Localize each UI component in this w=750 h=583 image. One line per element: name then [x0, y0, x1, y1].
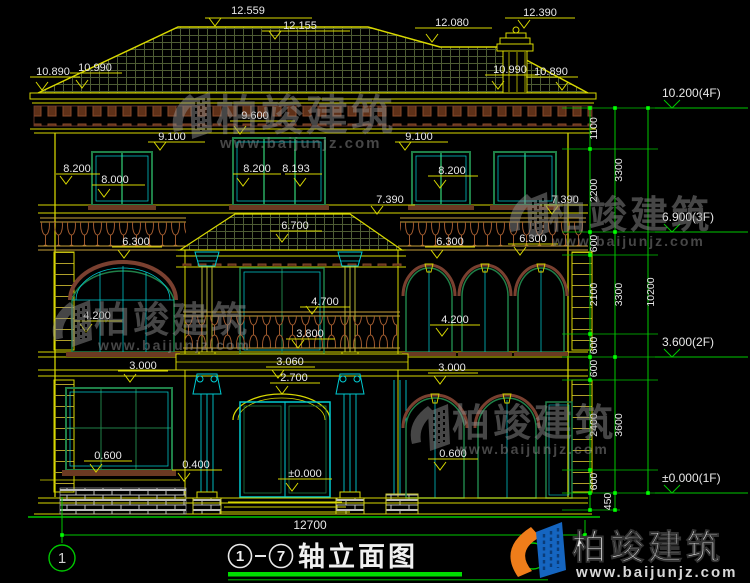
- leader-arrow: [124, 374, 136, 382]
- leader-arrow: [399, 142, 411, 150]
- leader-arrow: [286, 483, 298, 491]
- watermark-top: 柏竣建筑 www.baijunjz.com: [173, 92, 396, 152]
- brand-logo-url: www.baijunjz.com: [575, 564, 737, 581]
- leader-arrow: [431, 250, 443, 258]
- leader-arrow: [276, 386, 288, 394]
- dim-label: 9.100: [158, 131, 186, 143]
- leader-arrow: [237, 178, 249, 186]
- dim-label: 4.200: [441, 314, 469, 326]
- watermark-logo-icon: [411, 404, 450, 451]
- dim-label: 0.600: [94, 450, 122, 462]
- dim-label: 8.000: [101, 174, 129, 186]
- watermark-brand: 柏竣建筑: [452, 403, 616, 445]
- dim-label: 8.200: [63, 163, 91, 175]
- dim-label: 4.700: [311, 296, 339, 308]
- title-underline: [228, 572, 462, 577]
- leader-arrow: [118, 250, 130, 258]
- leader-arrow: [514, 247, 526, 255]
- dim-label: 2.700: [280, 372, 308, 384]
- drawing-title: 1 7 轴立面图: [228, 541, 548, 581]
- dim-label: 8.193: [282, 163, 310, 175]
- dim-label: 8.200: [243, 163, 271, 175]
- cad-canvas: 1100 2200 600 2100 600 600 2400 600 450 …: [0, 0, 750, 583]
- dim-label: 6.300: [436, 236, 464, 248]
- dim-label: 3.000: [438, 362, 466, 374]
- dim-text: 450: [602, 493, 614, 511]
- dim-label: 10.990: [78, 62, 112, 74]
- dim-label: 3.000: [129, 360, 157, 372]
- windows-2f-arched-right: [402, 264, 568, 356]
- brand-logo-building: [536, 522, 566, 578]
- dim-label: 3.060: [276, 356, 304, 368]
- level-label: 3.600(2F): [662, 335, 714, 349]
- dim-label: 6.700: [281, 220, 309, 232]
- leader-arrow: [60, 176, 72, 184]
- title-text: 轴立面图: [298, 541, 418, 572]
- entry-door: [233, 394, 330, 497]
- leader-arrow: [436, 328, 448, 336]
- dim-text: 2100: [588, 283, 600, 307]
- brand-logo-name: 柏竣建筑: [572, 528, 724, 567]
- level-label: 10.200(4F): [662, 86, 721, 100]
- title-underline-thin: [228, 579, 548, 581]
- total-width-label: 12700: [293, 518, 327, 532]
- porch-column-1f-left: [193, 374, 221, 514]
- dim-label: 0.400: [182, 459, 210, 471]
- dim-text: 3300: [613, 158, 625, 182]
- dim-label: 10.990: [493, 64, 527, 76]
- leader-arrow: [426, 34, 438, 42]
- dim-label: 12.390: [523, 7, 557, 19]
- dim-label: 9.100: [405, 131, 433, 143]
- leader-arrow: [154, 142, 166, 150]
- watermark-left: 柏竣建筑 www.baijunjz.com: [53, 299, 251, 353]
- dim-text: 3300: [613, 283, 625, 307]
- dim-label: 12.155: [283, 20, 317, 32]
- dim-label: 10.890: [534, 66, 568, 78]
- dim-label: 8.200: [438, 165, 466, 177]
- watermark-brand: 柏竣建筑: [216, 92, 396, 139]
- watermark-url: www.baijunjz.com: [97, 337, 251, 353]
- level-label: ±0.000(1F): [662, 471, 721, 485]
- dim-text: 1100: [588, 117, 600, 140]
- main-roof: [38, 27, 588, 93]
- dim-text: 600: [588, 473, 600, 491]
- watermark-brand: 柏竣建筑: [94, 299, 250, 340]
- leader-arrow: [518, 20, 530, 28]
- dim-text: 600: [588, 337, 600, 355]
- dim-label: ±0.000: [288, 468, 322, 480]
- watermark-brand: 柏竣建筑: [548, 195, 712, 237]
- bay-pilaster-1f: [386, 380, 418, 514]
- dim-label: 6.300: [122, 236, 150, 248]
- watermark-url: www.baijunjz.com: [551, 233, 705, 249]
- leader-arrow: [434, 462, 446, 470]
- watermark-url: www.baijunjz.com: [455, 441, 609, 457]
- dim-label: 12.080: [435, 17, 469, 29]
- porch-column-1f-right: [336, 374, 364, 514]
- brand-logo: 柏竣建筑 www.baijunjz.com: [510, 522, 737, 581]
- base-plinth: [28, 488, 600, 517]
- watermark-url: www.baijunjz.com: [219, 135, 381, 152]
- leader-arrow: [434, 376, 446, 384]
- leader-arrow: [209, 18, 221, 26]
- dim-label: 7.390: [376, 194, 404, 206]
- dim-label: 3.800: [296, 328, 324, 340]
- level-marks: 10.200(4F) 6.900(3F) 3.600(2F) ±0.000(1F…: [655, 86, 748, 493]
- dim-label: 10.890: [36, 66, 70, 78]
- leader-arrow: [98, 189, 110, 197]
- window-3f-right1: [408, 152, 474, 210]
- axis-bubble-1-label: 1: [58, 550, 66, 567]
- dim-label: 12.559: [231, 5, 265, 17]
- dim-text: 10200: [645, 277, 657, 306]
- title-axis-end: 7: [277, 548, 285, 565]
- title-axis-start: 1: [236, 548, 244, 565]
- dim-text: 600: [588, 360, 600, 378]
- elevation-drawing: 1100 2200 600 2100 600 600 2400 600 450 …: [0, 0, 750, 583]
